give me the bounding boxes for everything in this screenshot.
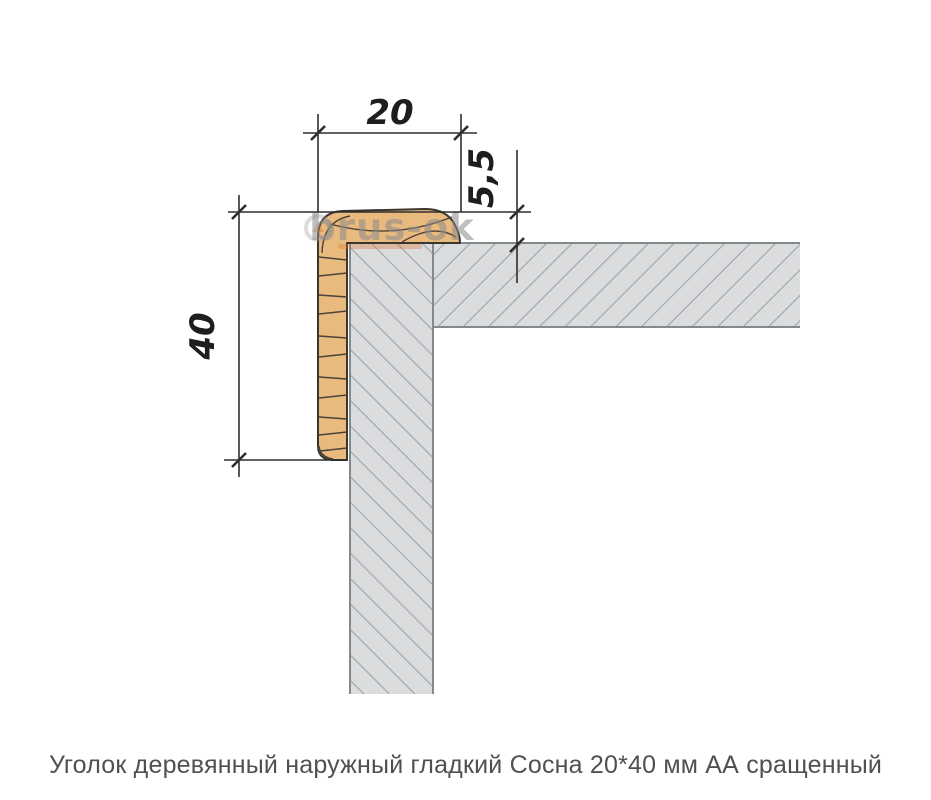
technical-drawing: brus-ok 20 40 5,5 [0,0,931,745]
dim-thickness-label: 5,5 [462,148,502,208]
product-caption: Уголок деревянный наружный гладкий Сосна… [0,751,931,780]
wall-horizontal [433,243,800,327]
dim-height-label: 40 [183,312,223,360]
dim-width-label: 20 [366,93,413,133]
watermark-tagline [338,244,422,249]
wall-section [350,243,800,694]
wall-vertical [350,243,433,694]
product-drawing-page: brus-ok 20 40 5,5 Уголок деревянный нару… [0,0,931,800]
